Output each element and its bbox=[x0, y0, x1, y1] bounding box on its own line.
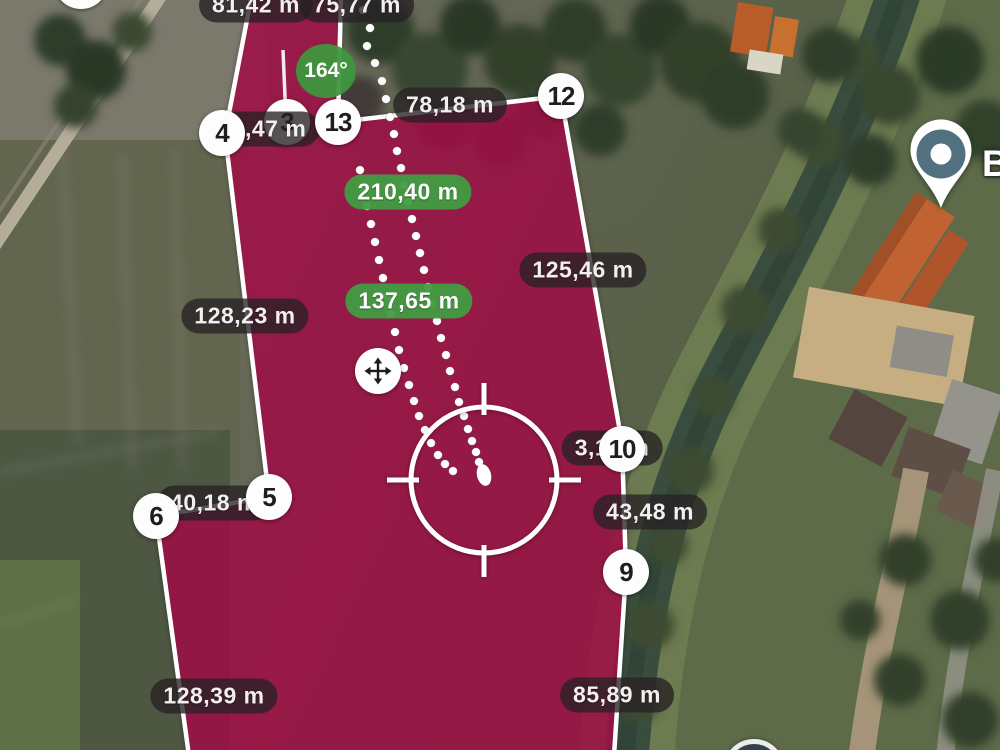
map-pin-dot bbox=[931, 144, 952, 165]
angle-badge: 164° bbox=[296, 44, 356, 98]
vertex-marker-4[interactable]: 4 bbox=[199, 110, 245, 156]
place-label: B bbox=[982, 143, 1000, 185]
edge-label-128-23: 128,23 m bbox=[181, 299, 308, 334]
edge-label-81-42: 81,42 m bbox=[199, 0, 313, 23]
vertex-marker-5[interactable]: 5 bbox=[246, 474, 292, 520]
edge-label-78-18: 78,18 m bbox=[393, 88, 507, 123]
vertex-marker-10[interactable]: 10 bbox=[599, 426, 645, 472]
vertex-marker-13[interactable]: 13 bbox=[315, 99, 361, 145]
edge-label-137-65: 137,65 m bbox=[345, 284, 472, 319]
edge-label-210-40: 210,40 m bbox=[344, 175, 471, 210]
move-handle[interactable] bbox=[355, 348, 401, 394]
move-arrows-icon bbox=[363, 356, 393, 386]
edge-label-125-46: 125,46 m bbox=[519, 253, 646, 288]
map-canvas[interactable]: 81,42 m 75,77 m 1,47 m 78,18 m 210,40 m … bbox=[0, 0, 1000, 750]
edge-label-43-48: 43,48 m bbox=[593, 495, 707, 530]
vertex-marker-12[interactable]: 12 bbox=[538, 73, 584, 119]
map-pin[interactable] bbox=[905, 118, 977, 213]
edge-label-85-89: 85,89 m bbox=[560, 678, 674, 713]
edge-label-128-39: 128,39 m bbox=[150, 679, 277, 714]
vertex-marker-6[interactable]: 6 bbox=[133, 493, 179, 539]
edge-label-75-77: 75,77 m bbox=[300, 0, 414, 23]
vertex-marker-9[interactable]: 9 bbox=[603, 549, 649, 595]
